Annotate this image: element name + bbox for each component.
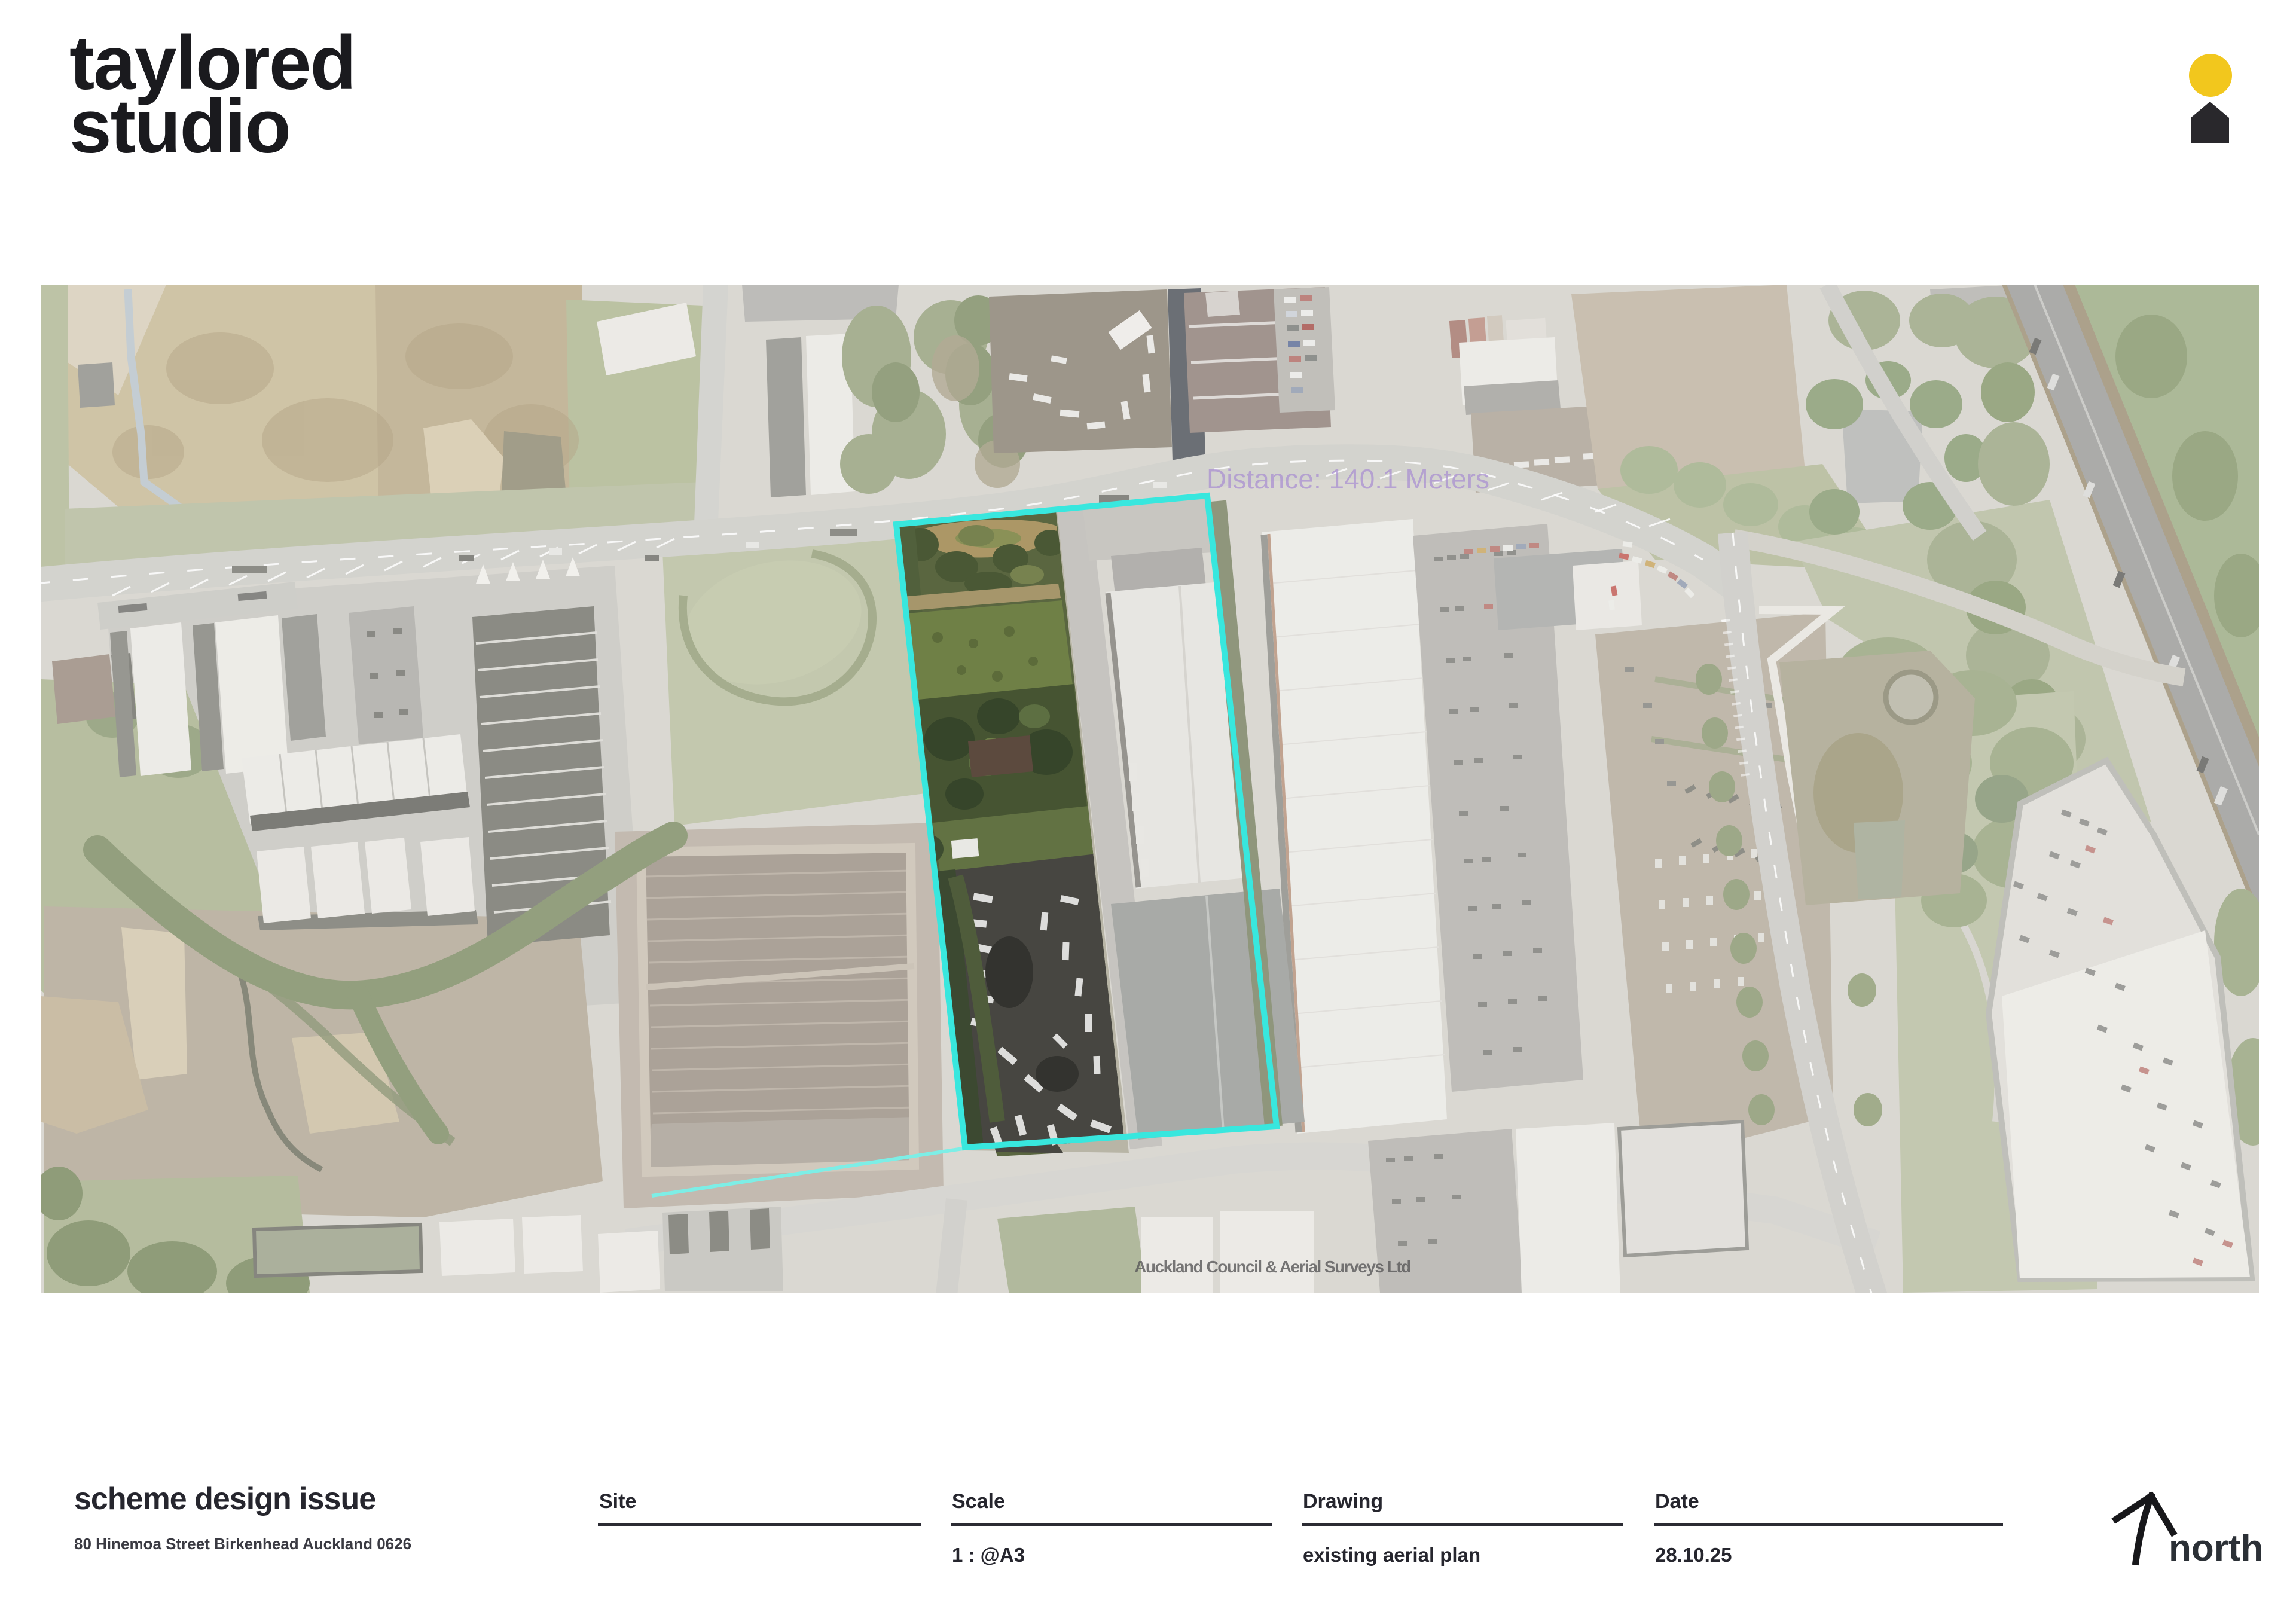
svg-text:Auckland Council & Aerial Surv: Auckland Council & Aerial Surveys Ltd	[1134, 1257, 1410, 1276]
svg-text:north: north	[2169, 1528, 2263, 1569]
svg-text:Distance: 140.1 Meters: Distance: 140.1 Meters	[1207, 463, 1489, 494]
